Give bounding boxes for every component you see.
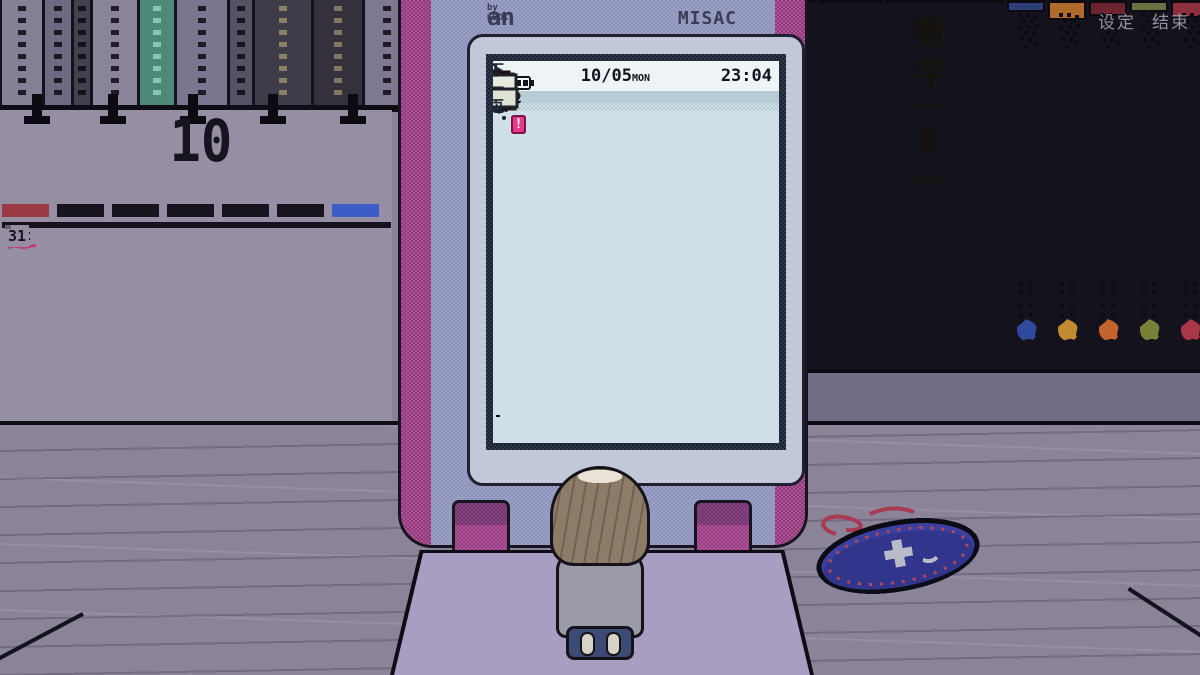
character-shoe xyxy=(580,632,595,656)
calendar-ring xyxy=(260,94,286,126)
phone-brand-logo: an by KDDI xyxy=(487,3,514,31)
book-spine xyxy=(230,0,252,108)
book-spine xyxy=(45,0,71,108)
status-weekday: MON xyxy=(632,73,650,84)
book-spine xyxy=(819,0,883,369)
notification-badge-icon xyxy=(511,115,526,134)
calendar-month: 10 xyxy=(169,112,232,170)
book-spine xyxy=(314,0,362,108)
spine-emblem-icon xyxy=(1099,319,1119,341)
brand-sub: by KDDI xyxy=(487,3,514,23)
right-bookshelf xyxy=(794,0,1200,369)
status-band-dither xyxy=(493,103,779,111)
volume-spine xyxy=(1007,0,1045,3)
pouch-on-floor xyxy=(806,498,991,603)
spine-emblem-icon xyxy=(1181,319,1200,341)
volume-spine xyxy=(1089,0,1127,3)
left-bookshelf xyxy=(0,0,452,108)
volume-spine xyxy=(1171,0,1200,3)
spine-emblem-icon xyxy=(1140,319,1160,341)
softkey-bar xyxy=(493,415,779,443)
status-date: 10/05MON xyxy=(581,66,650,86)
calendar-ring xyxy=(100,94,126,126)
calendar-weekday-block xyxy=(332,204,379,217)
calendar-weekday-block xyxy=(277,204,324,217)
phone-screen: 10/05MON 23:04 xyxy=(493,61,779,443)
status-band xyxy=(493,91,779,103)
calendar-grid: 12345678910111213-1415161718192021222324… xyxy=(2,222,391,228)
book-spine xyxy=(74,0,90,108)
wall-calendar: 10 12345678910111213-1415161718192021222… xyxy=(0,110,392,424)
book-spine xyxy=(1048,0,1086,369)
calendar-weekday-block xyxy=(167,204,214,217)
settings-button[interactable]: 设定 xyxy=(1098,8,1136,33)
status-bar: 10/05MON 23:04 xyxy=(493,61,779,91)
math-book-spine-title: 数学(Ⅱ) xyxy=(906,16,952,346)
volume-spine xyxy=(1048,0,1086,3)
calendar-ring xyxy=(340,94,366,126)
calendar-weekday-block xyxy=(222,204,269,217)
phone-face: an by KDDI MISAC xyxy=(431,0,775,545)
character-hair xyxy=(550,466,650,566)
spine-emblem-icon xyxy=(1017,319,1037,341)
book-spine xyxy=(1171,0,1200,369)
book-spine xyxy=(1007,0,1045,369)
spine-emblem-icon xyxy=(1058,319,1078,341)
book-spine xyxy=(177,0,227,108)
book-spine xyxy=(1130,0,1168,369)
book-spine xyxy=(1089,0,1127,369)
character-pants xyxy=(566,626,634,660)
game-scene: 10 12345678910111213-1415161718192021222… xyxy=(0,0,1200,675)
calendar-weekday-block xyxy=(57,204,104,217)
book-spine xyxy=(255,0,311,108)
phone-model-label: MISAC xyxy=(678,8,737,29)
character-sitting xyxy=(548,466,652,658)
calendar-day-cell xyxy=(5,225,11,229)
volume-spine xyxy=(1130,0,1168,3)
phone-menu-grid: 邮件 J xyxy=(497,115,775,413)
book-spine-body xyxy=(819,0,883,3)
calendar-weekday-header xyxy=(2,204,379,217)
menu-item-label: 下一页 xyxy=(493,61,505,115)
quit-button[interactable]: 结束 xyxy=(1152,8,1190,33)
game-overlay-menu: 设定 结束 xyxy=(1098,8,1190,33)
softkey-right[interactable] xyxy=(496,415,500,417)
calendar-weekday-block xyxy=(112,204,159,217)
calendar-weekday-block xyxy=(2,204,49,217)
book-spine-body xyxy=(886,0,1004,3)
book-spine xyxy=(93,0,137,108)
phone-left-edge xyxy=(401,0,433,545)
book-spine xyxy=(2,0,42,108)
book-top-band xyxy=(1048,0,1086,20)
pouch-icon xyxy=(806,498,991,603)
book-spine xyxy=(140,0,174,108)
character-shoe xyxy=(606,632,621,656)
calendar-ring xyxy=(24,94,50,126)
status-clock: 23:04 xyxy=(721,66,772,86)
screen-frame: 10/05MON 23:04 xyxy=(486,54,786,450)
screen-bezel: 10/05MON 23:04 xyxy=(467,34,805,486)
